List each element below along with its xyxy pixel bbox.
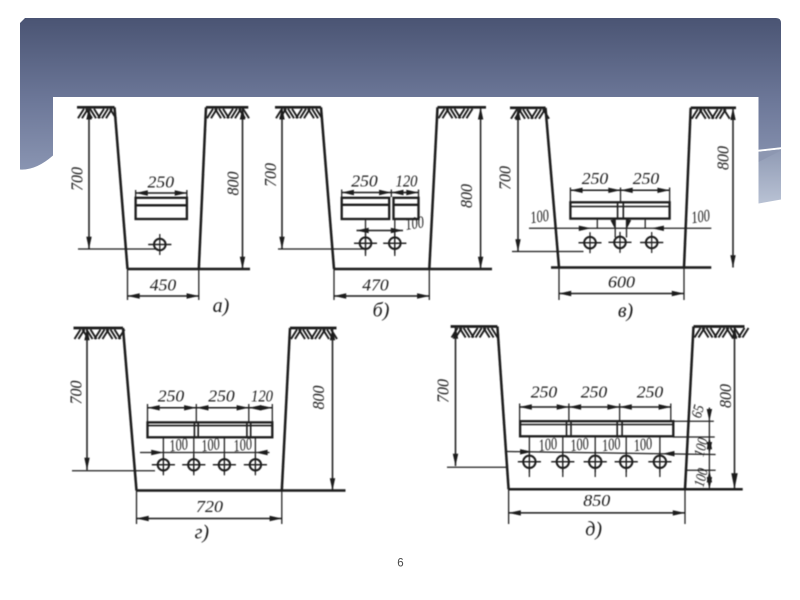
svg-text:470: 470 <box>362 276 389 295</box>
svg-text:700: 700 <box>496 166 515 190</box>
svg-text:120: 120 <box>396 172 418 191</box>
svg-text:850: 850 <box>583 491 611 510</box>
svg-text:450: 450 <box>150 276 177 295</box>
svg-text:700: 700 <box>261 163 280 187</box>
svg-text:250: 250 <box>637 383 664 402</box>
svg-text:800: 800 <box>224 171 243 195</box>
svg-text:д): д) <box>585 519 602 541</box>
svg-text:800: 800 <box>457 184 476 208</box>
svg-text:100: 100 <box>601 434 622 455</box>
svg-text:120: 120 <box>251 387 273 406</box>
svg-text:6: 6 <box>397 558 403 570</box>
svg-text:720: 720 <box>196 497 224 516</box>
svg-text:600: 600 <box>608 273 636 292</box>
svg-text:700: 700 <box>433 379 452 403</box>
svg-text:250: 250 <box>582 169 609 188</box>
svg-text:250: 250 <box>158 387 185 406</box>
svg-text:800: 800 <box>716 384 735 408</box>
svg-text:100: 100 <box>529 206 550 227</box>
svg-text:а): а) <box>213 295 230 317</box>
svg-text:250: 250 <box>148 173 175 192</box>
svg-text:800: 800 <box>309 385 328 409</box>
svg-text:в): в) <box>618 300 634 322</box>
svg-text:700: 700 <box>67 167 86 191</box>
svg-text:700: 700 <box>66 380 85 404</box>
svg-text:100: 100 <box>632 434 653 455</box>
svg-text:250: 250 <box>581 383 608 402</box>
svg-text:800: 800 <box>714 146 733 170</box>
svg-text:250: 250 <box>633 169 660 188</box>
svg-text:100: 100 <box>404 212 425 233</box>
svg-text:250: 250 <box>351 172 378 191</box>
svg-text:б): б) <box>373 300 390 322</box>
svg-text:100: 100 <box>690 206 711 227</box>
svg-text:г): г) <box>195 522 210 544</box>
svg-text:250: 250 <box>208 387 235 406</box>
svg-text:250: 250 <box>531 383 558 402</box>
